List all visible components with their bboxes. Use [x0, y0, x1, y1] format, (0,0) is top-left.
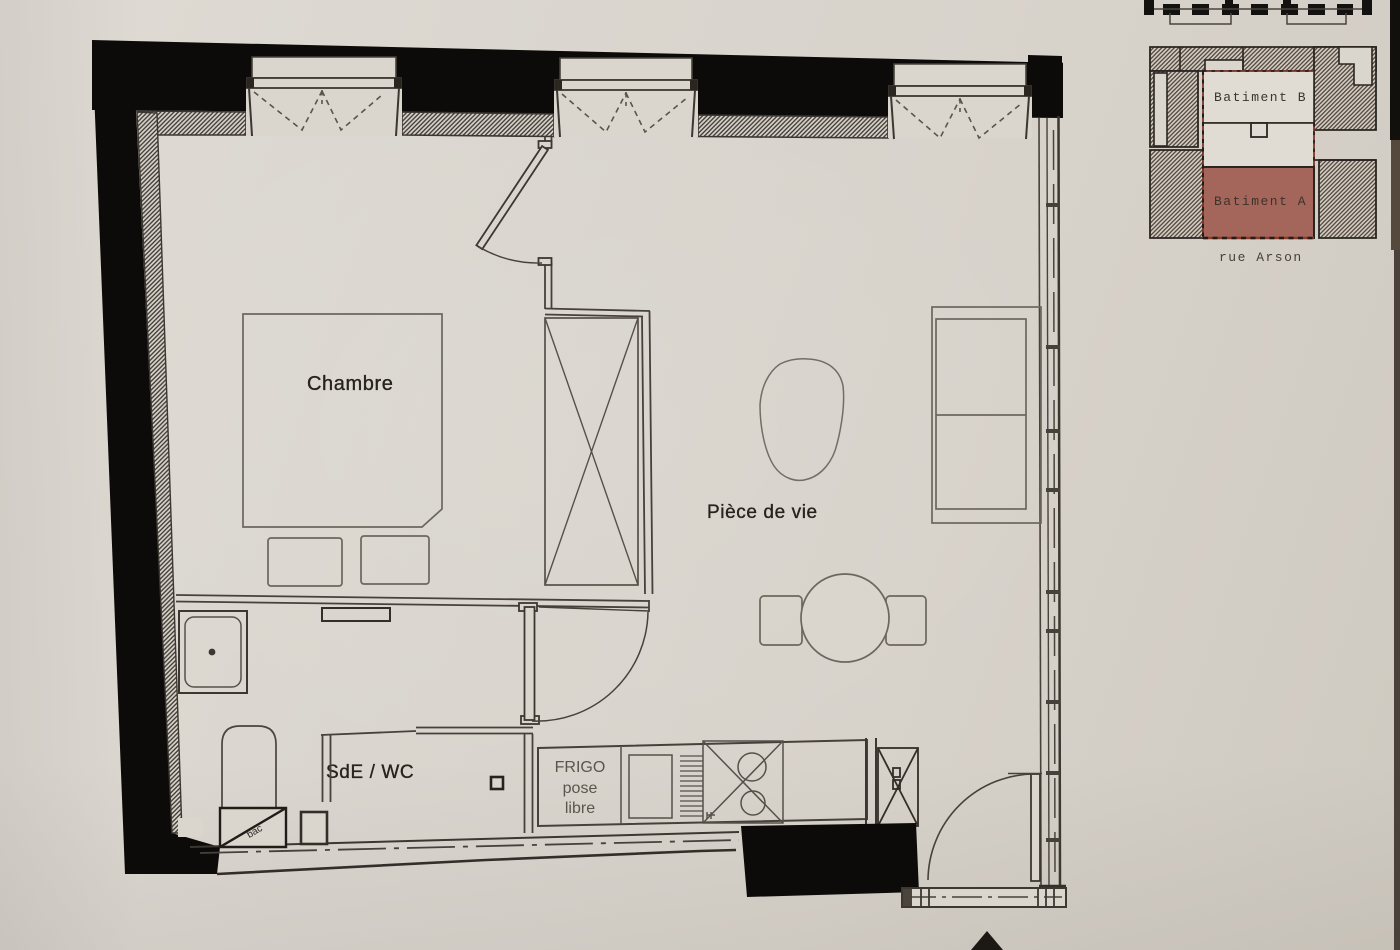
- svg-text:FRIGO: FRIGO: [555, 759, 606, 776]
- svg-text:Batiment A: Batiment A: [1214, 194, 1307, 209]
- svg-text:Batiment B: Batiment B: [1214, 90, 1307, 105]
- svg-text:Pièce de vie: Pièce de vie: [707, 502, 818, 523]
- svg-text:rue Arson: rue Arson: [1219, 250, 1303, 265]
- svg-text:SdE / WC: SdE / WC: [326, 762, 414, 783]
- svg-text:libre: libre: [565, 800, 595, 817]
- svg-text:Chambre: Chambre: [307, 373, 393, 395]
- svg-text:pose: pose: [563, 780, 598, 797]
